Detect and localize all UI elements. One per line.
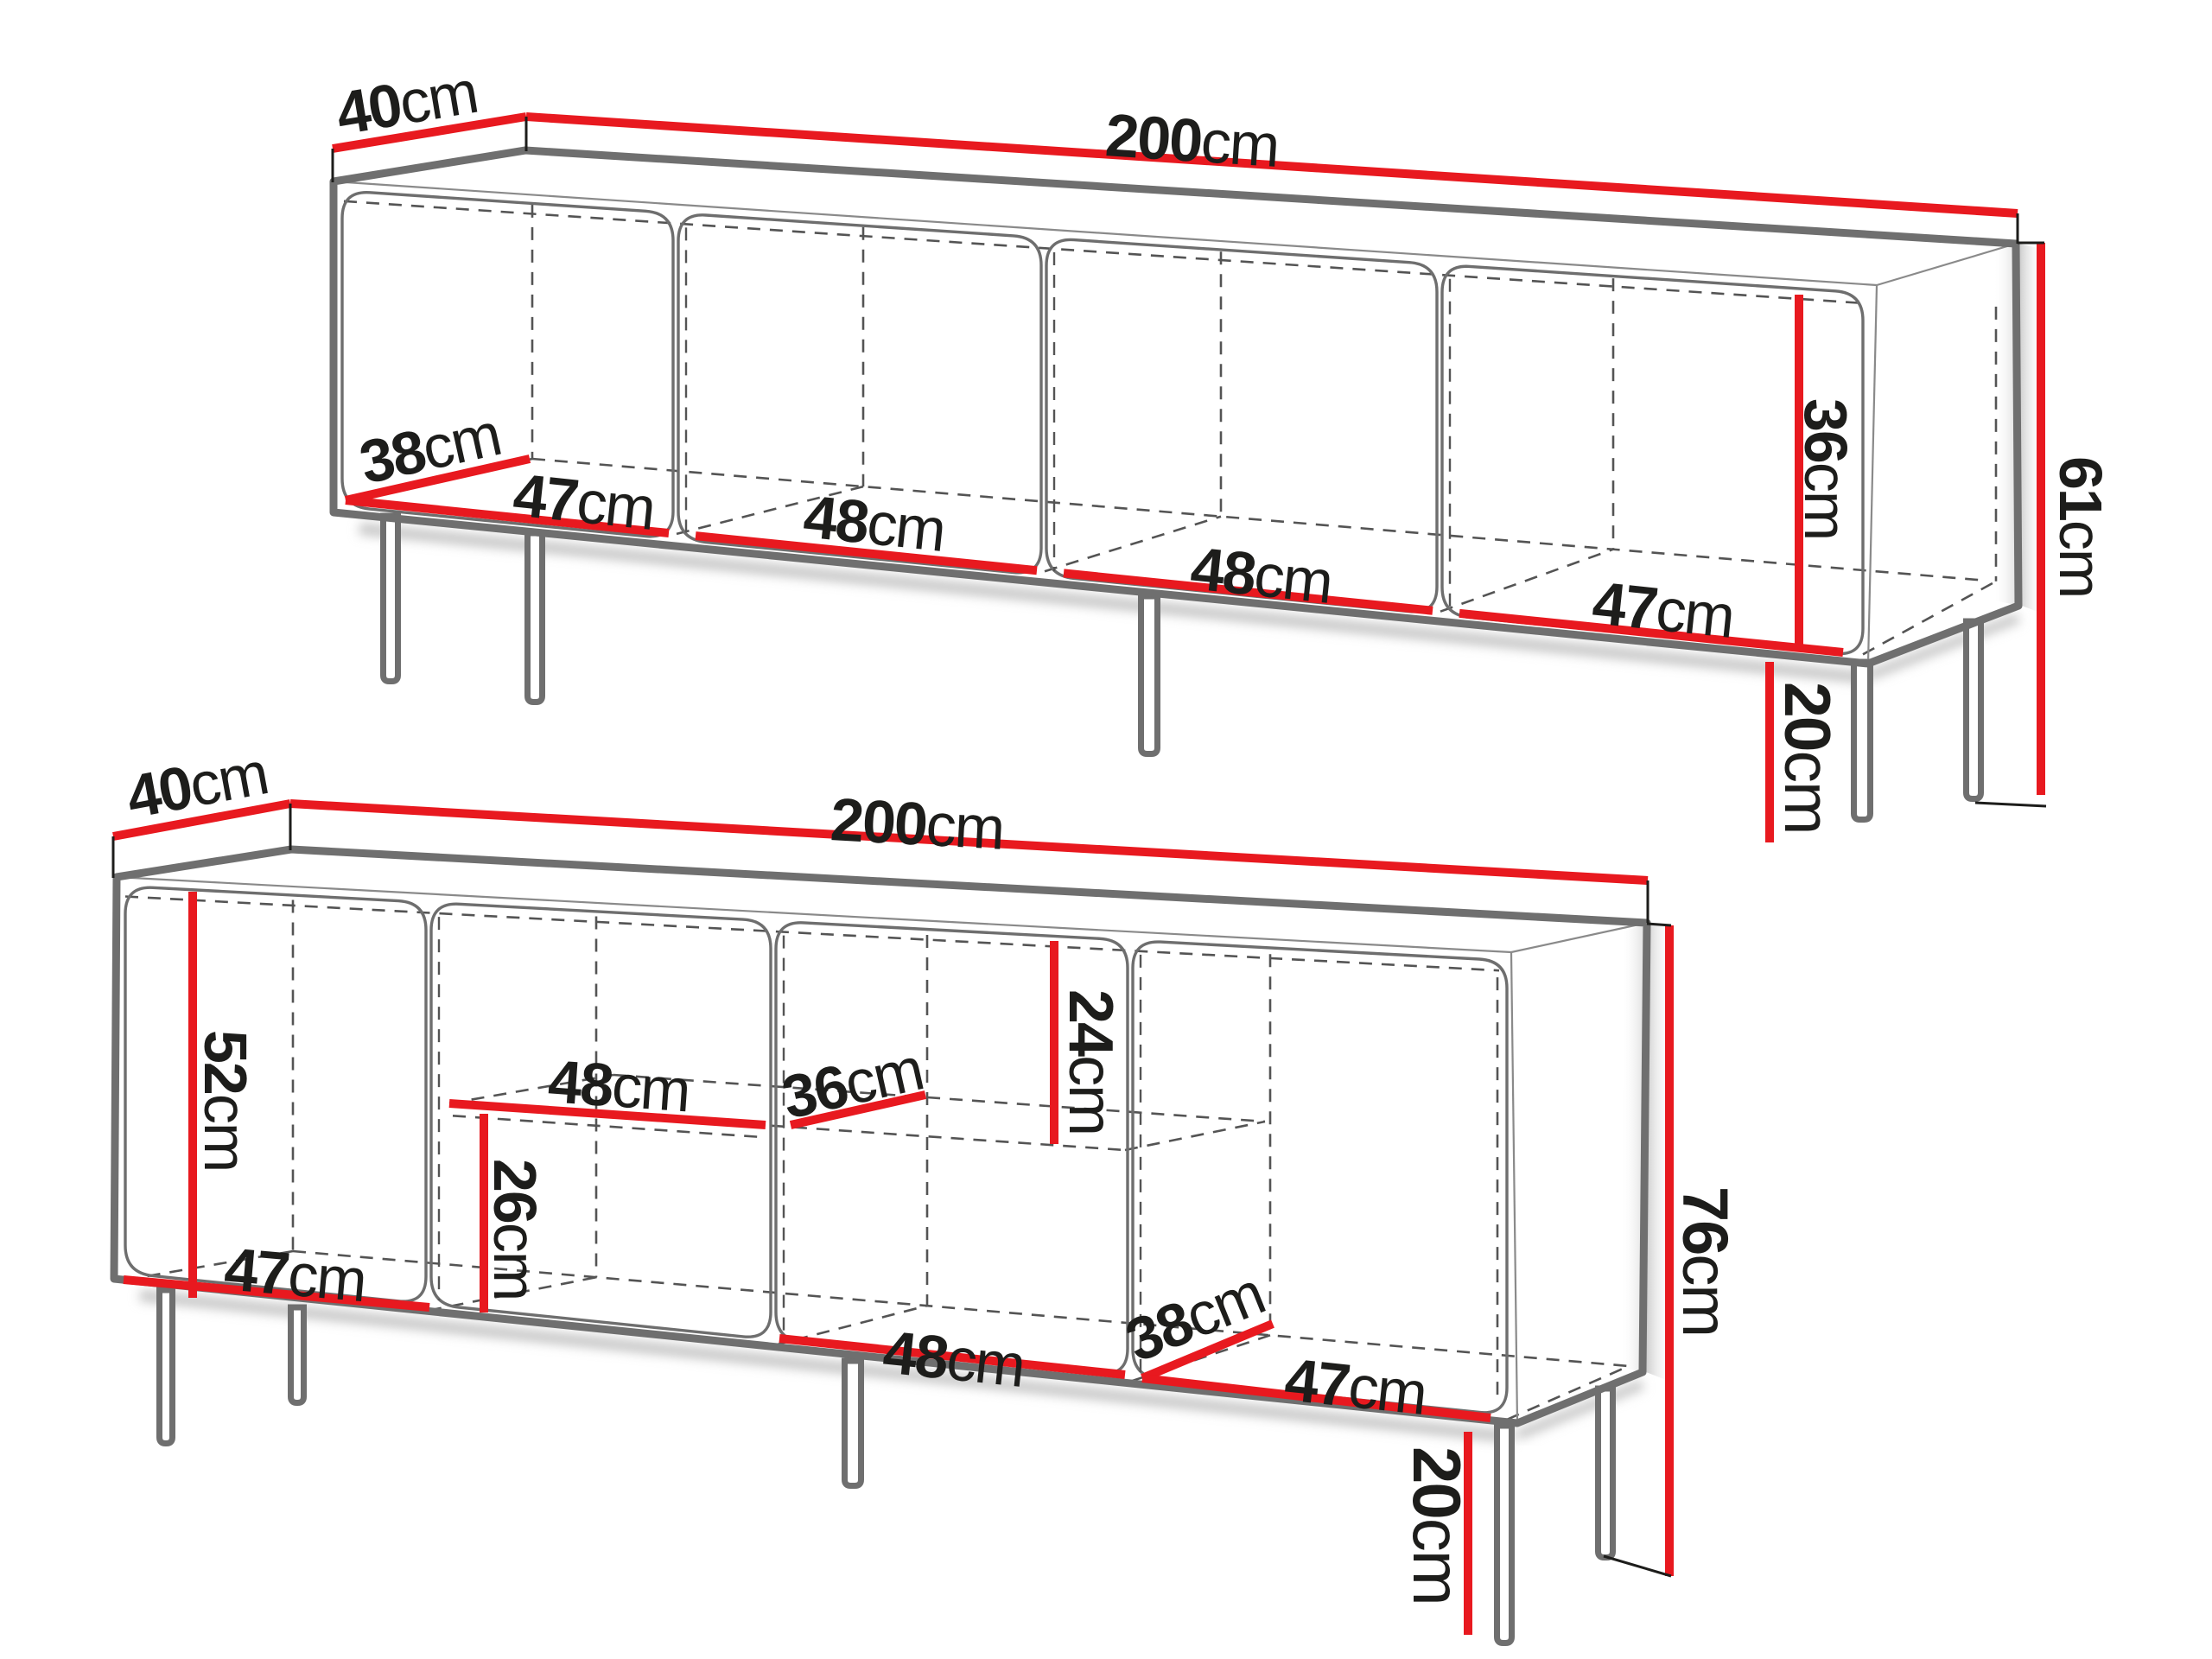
svg-text:20cm: 20cm xyxy=(1771,682,1844,833)
svg-text:26cm: 26cm xyxy=(481,1159,549,1300)
svg-text:47cm: 47cm xyxy=(222,1235,368,1314)
svg-text:200cm: 200cm xyxy=(829,785,1005,862)
svg-text:48cm: 48cm xyxy=(546,1047,691,1124)
svg-text:200cm: 200cm xyxy=(1103,101,1281,180)
svg-text:36cm: 36cm xyxy=(1792,398,1859,539)
svg-text:24cm: 24cm xyxy=(1056,989,1125,1135)
svg-text:20cm: 20cm xyxy=(1399,1446,1475,1605)
svg-text:76cm: 76cm xyxy=(1669,1186,1741,1336)
svg-text:61cm: 61cm xyxy=(2047,456,2114,597)
svg-text:52cm: 52cm xyxy=(192,1030,259,1171)
